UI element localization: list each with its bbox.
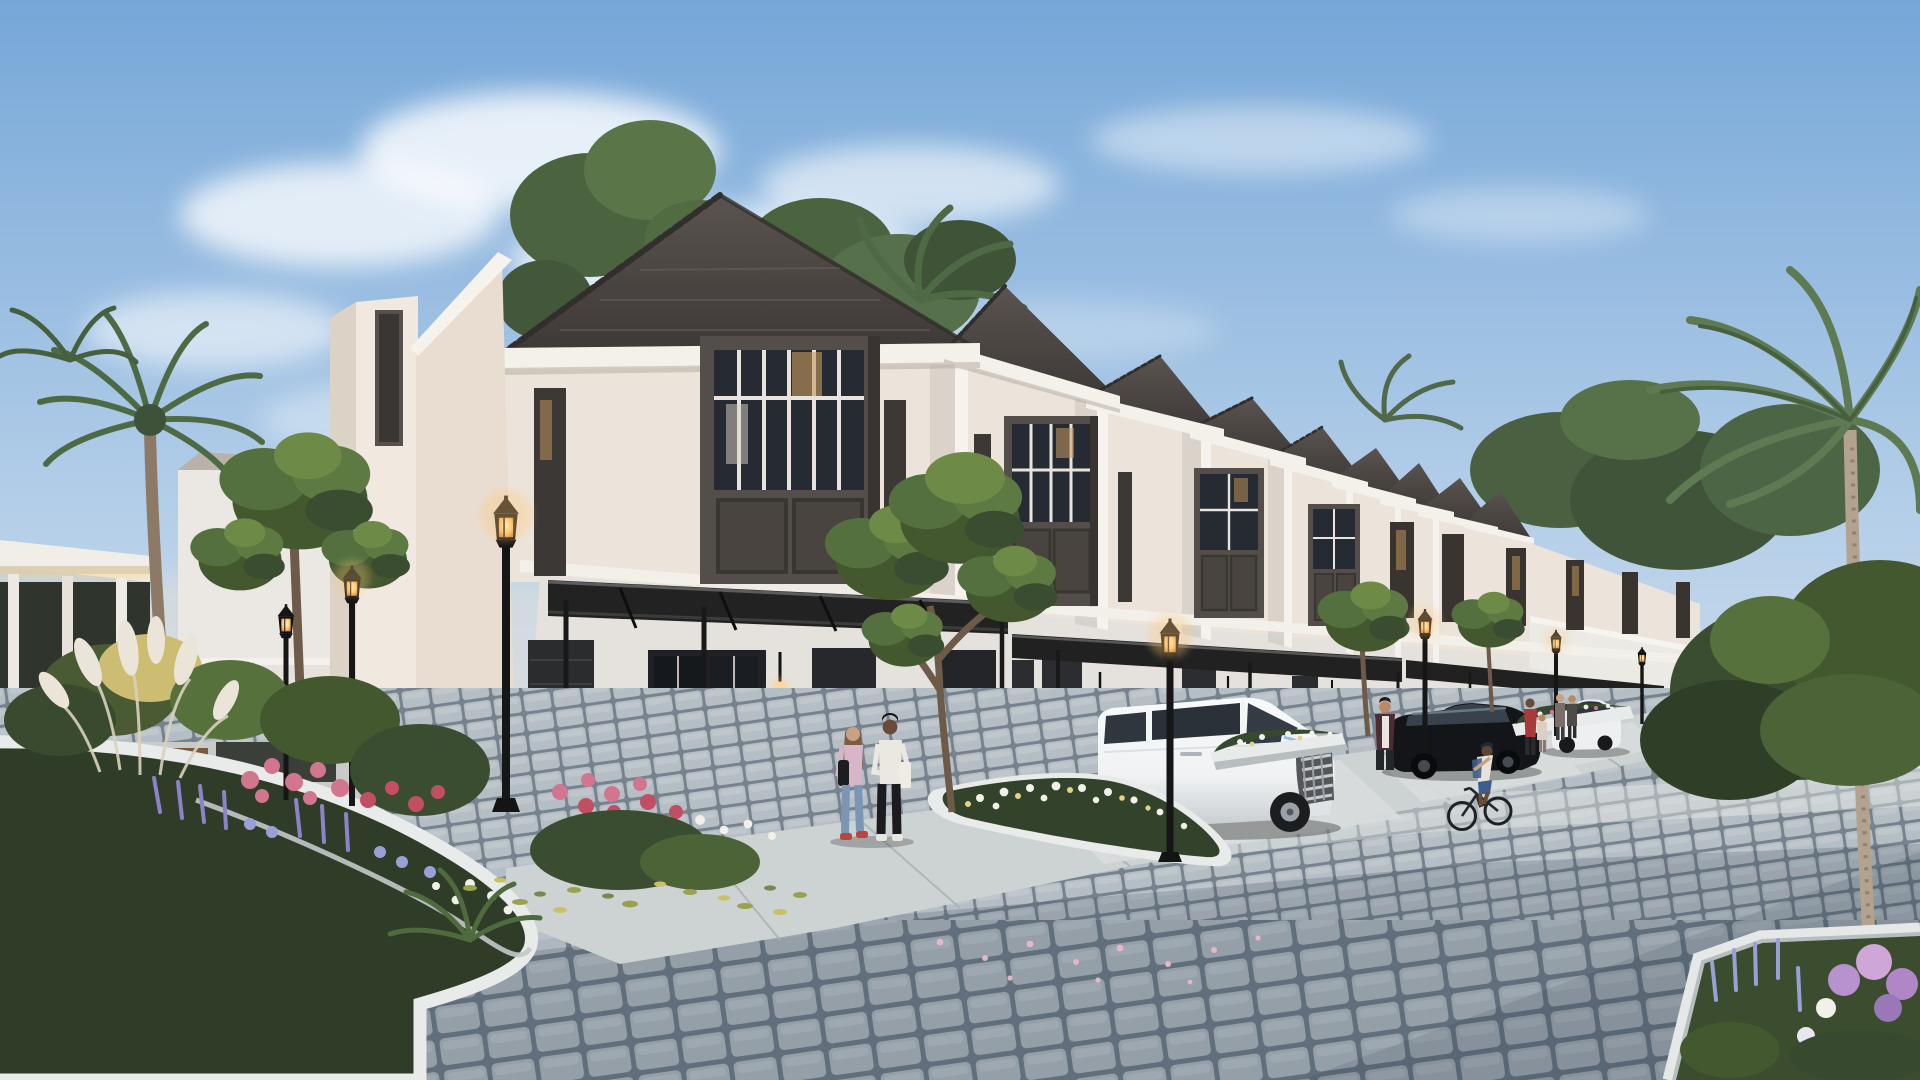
rendered-scene	[0, 0, 1920, 1080]
scene-canvas	[0, 0, 1920, 1080]
bay-window-house-3	[1194, 468, 1264, 618]
tower-slit-window	[377, 312, 401, 444]
bottom-right-bed	[1668, 928, 1920, 1080]
